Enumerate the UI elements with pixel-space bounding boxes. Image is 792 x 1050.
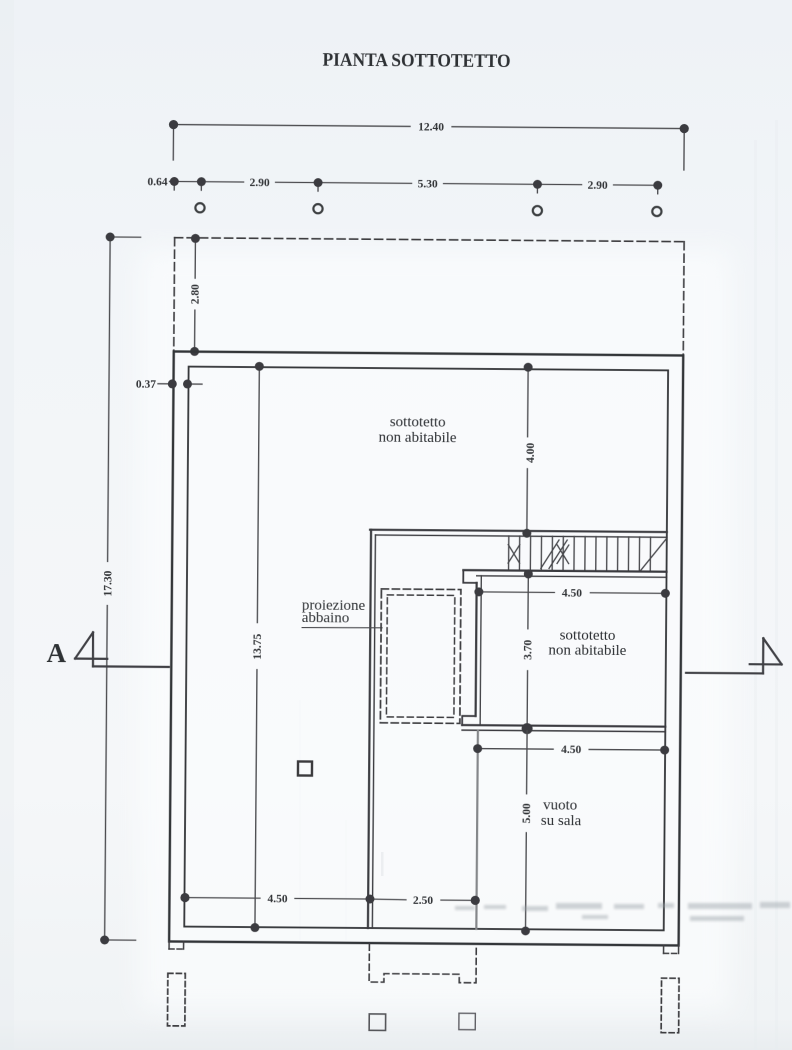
- svg-text:sottotetto: sottotetto: [560, 628, 616, 644]
- svg-text:sottotetto: sottotetto: [390, 414, 446, 430]
- svg-text:non abitabile: non abitabile: [548, 642, 626, 659]
- svg-text:abbaino: abbaino: [302, 610, 350, 626]
- svg-text:5.00: 5.00: [521, 803, 533, 823]
- svg-text:A: A: [47, 638, 67, 668]
- svg-text:vuoto: vuoto: [543, 797, 577, 813]
- svg-text:17.30: 17.30: [102, 570, 114, 596]
- svg-text:0.37: 0.37: [136, 378, 156, 390]
- svg-text:non abitabile: non abitabile: [379, 429, 457, 446]
- svg-text:4.50: 4.50: [267, 893, 287, 905]
- svg-text:5.30: 5.30: [417, 178, 437, 190]
- svg-text:4.50: 4.50: [562, 587, 582, 599]
- svg-text:12.40: 12.40: [418, 121, 444, 133]
- svg-text:13.75: 13.75: [252, 633, 264, 659]
- svg-text:3.70: 3.70: [523, 639, 535, 659]
- svg-text:su sala: su sala: [541, 813, 582, 829]
- svg-text:2.90: 2.90: [587, 180, 607, 192]
- svg-text:2.80: 2.80: [190, 284, 202, 304]
- svg-text:2.90: 2.90: [249, 177, 269, 189]
- svg-text:4.00: 4.00: [525, 442, 537, 462]
- svg-text:PIANTA SOTTOTETTO: PIANTA SOTTOTETTO: [322, 50, 510, 72]
- svg-text:2.50: 2.50: [413, 895, 433, 907]
- svg-text:4.50: 4.50: [561, 744, 581, 756]
- svg-text:0.64: 0.64: [147, 176, 167, 188]
